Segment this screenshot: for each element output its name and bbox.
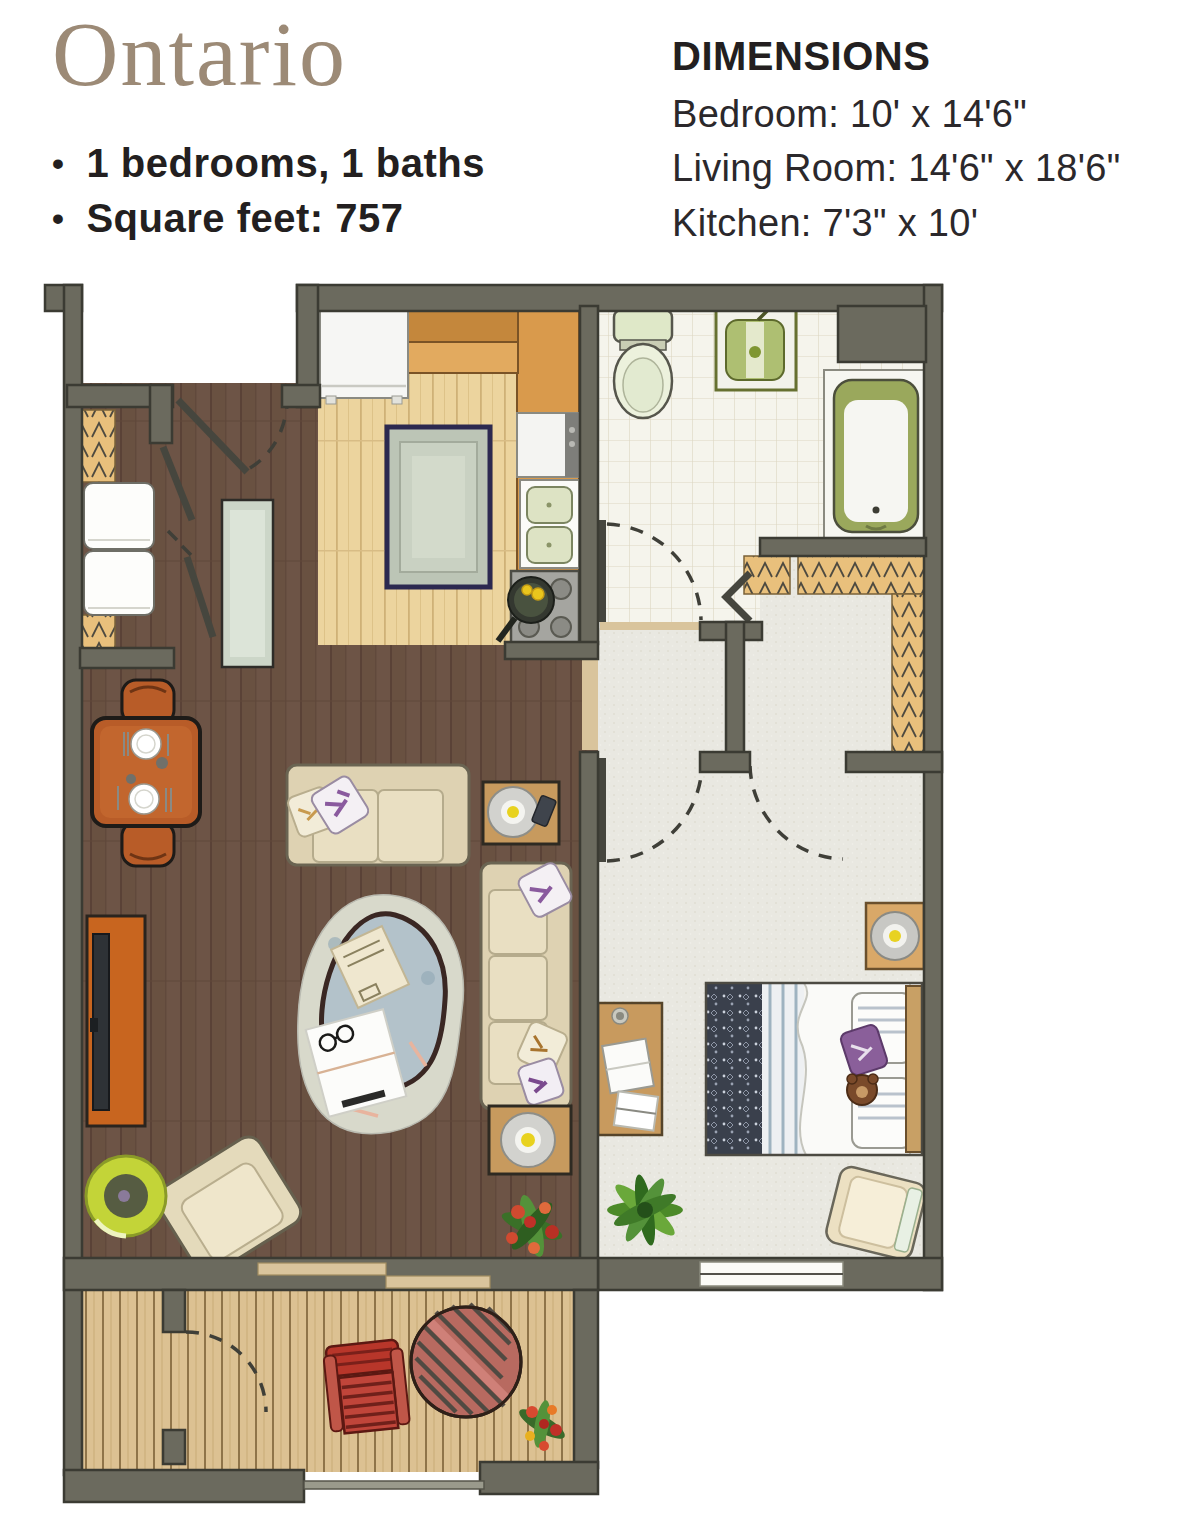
sofa-cushion [489,956,547,1020]
wall-hall-closet [726,622,744,756]
refrigerator-foot [392,396,402,404]
wall-entry-cap [150,385,172,443]
egg [522,585,532,595]
wall-bedroom-door-right [846,752,942,772]
plate [131,729,161,759]
lamp-table-top [483,782,559,844]
sink-drain [547,503,552,508]
ottoman-button [118,1190,130,1202]
floor-plan-drawing [0,0,1200,1516]
wall-kitchen-foot [282,385,320,407]
dishwasher-knob [569,441,575,447]
wall-patio-stub [163,1290,185,1332]
stove-burner [551,617,571,637]
teddy-bear-face [856,1086,868,1098]
wall-patio-right [574,1290,598,1468]
kitchen-rug-center [412,456,465,558]
hall-threshold [582,660,598,750]
tv-area [87,916,145,1126]
entry-bench-cushion [230,510,265,657]
bed [706,983,922,1155]
closet-shelf [82,410,115,482]
patio-chair [323,1339,411,1435]
patio-table [411,1304,521,1417]
dryer [84,551,154,615]
lamp-bulb [507,806,519,818]
loveseat-cushion [378,790,443,862]
ottoman [86,1156,166,1236]
wall-laundry-closet [80,648,174,668]
teddy-bear-ear [847,1074,857,1084]
wall-right [924,285,942,1290]
bed-blanket [706,983,762,1155]
egg [532,588,544,600]
wall-patio-stub [163,1430,185,1464]
tv-mount [90,1018,98,1032]
patio-railing [304,1481,484,1489]
floor-plan-container [0,0,1200,1516]
wall-bath-south [760,538,926,556]
closet-shelf [82,615,115,648]
patio-sliding-door-sill [386,1276,490,1288]
bathtub-basin [844,400,908,522]
sofa-loveseat [286,765,469,865]
wall-patio-bottom-right [480,1462,598,1494]
kitchen-upper-cabinet [408,308,518,342]
sink-drain [547,543,552,548]
desk-cup-inner [616,1012,624,1020]
toilet-tank [614,310,672,342]
teddy-bear-ear [868,1074,878,1084]
wall-left [64,285,82,1475]
patio-sliding-door-sill [258,1263,386,1275]
refrigerator-foot [326,396,336,404]
desk [598,1003,662,1135]
bathroom-threshold [600,622,700,630]
kitchen-counter-top [408,342,518,373]
dishwasher-knob [569,427,575,433]
headboard [906,986,922,1152]
closet-shelf [798,556,926,594]
bathtub-drain [873,507,880,514]
lamp-table-bottom [489,1106,571,1174]
sofa-vertical [481,861,574,1109]
cup [156,757,168,769]
refrigerator [320,308,408,398]
wall-living-bedroom [580,752,598,1260]
table-texture-dot [421,971,435,985]
cup [126,774,136,784]
toilet-bowl-inner [623,358,663,412]
plate [129,784,159,814]
wall-patio-bottom-left [64,1470,304,1502]
lamp-bulb [521,1133,535,1147]
wall-kitchen-south [505,642,598,659]
closet-shelf [892,594,926,752]
vanity-drain [749,346,761,358]
wall-bath-niche [838,306,926,362]
coffee-table [298,895,464,1134]
nightstand-lamp-bulb [889,930,901,942]
floor-plan-page: { "header": { "title": "Ontario", "bulle… [0,0,1200,1516]
wall-bedroom-door-left [700,752,750,772]
wall-kitchen-bath [580,306,598,644]
